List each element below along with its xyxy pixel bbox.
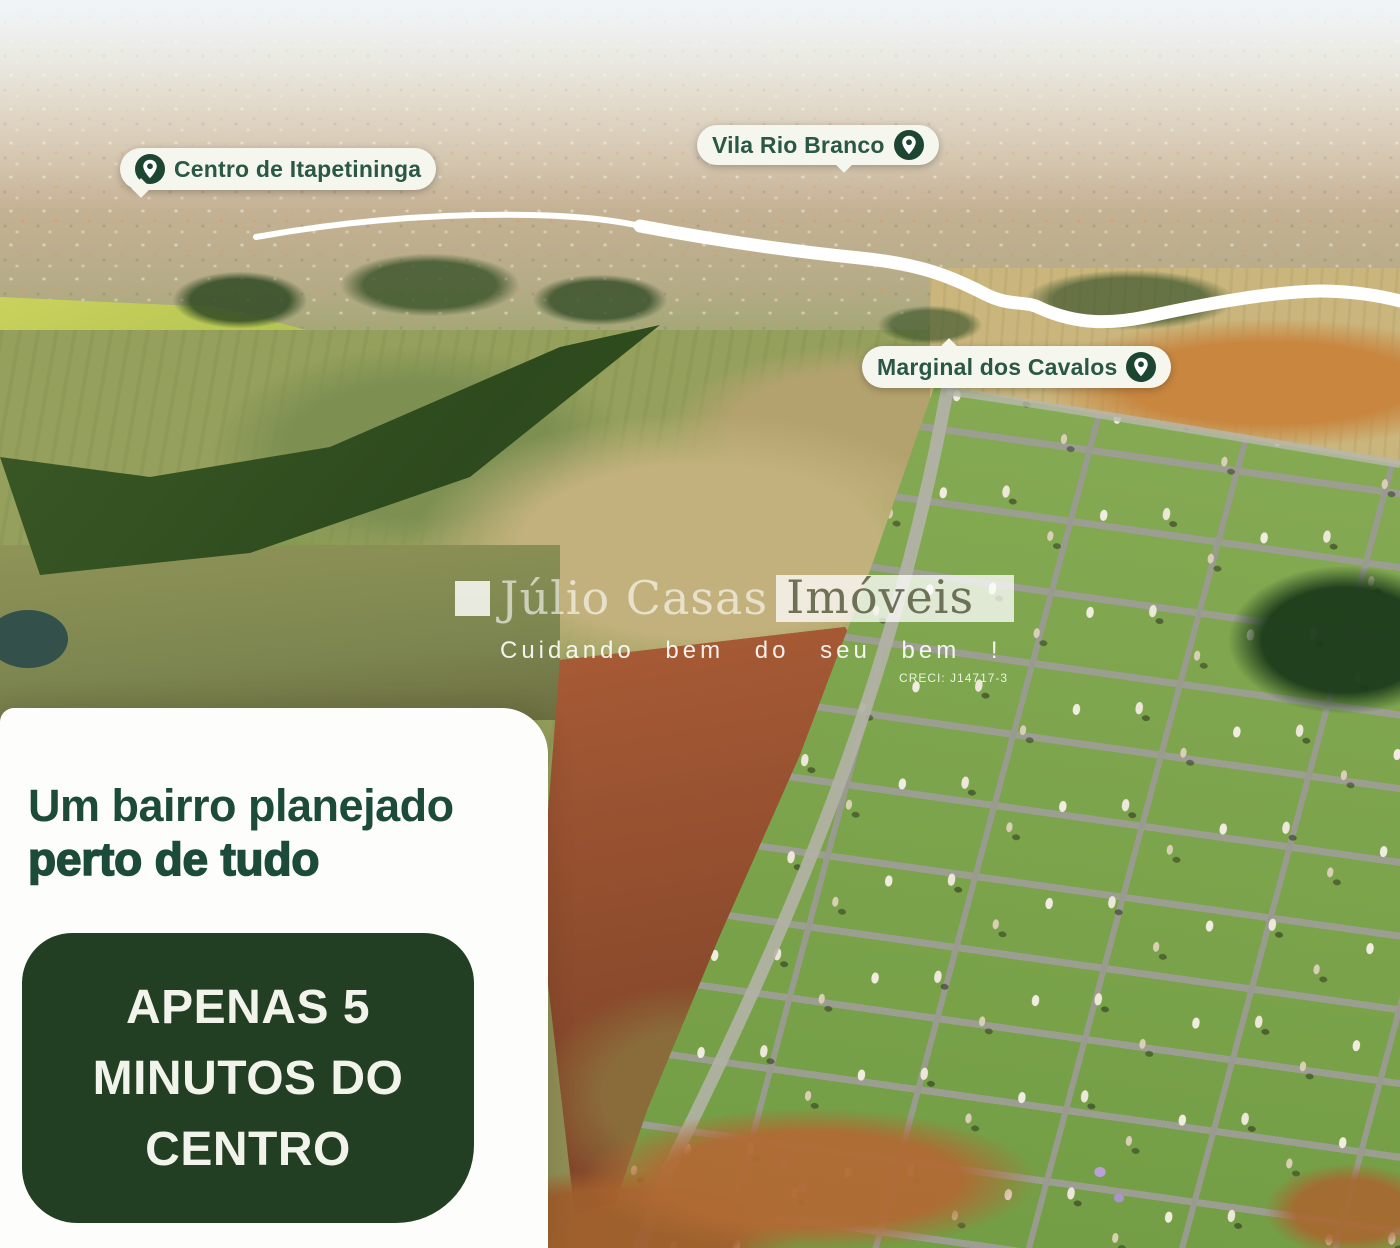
creci-license: CRECI: J14717-3 (899, 671, 1008, 685)
road-highlight-icon (640, 226, 1400, 322)
road-highlight-thin (256, 215, 650, 237)
headline-line1: Um bairro planejado (28, 780, 454, 832)
brand-name-secondary: Imóveis (786, 570, 974, 624)
location-pin-icon (894, 130, 924, 160)
badge-line1: APENAS 5 (126, 972, 370, 1043)
brand-tagline: Cuidando bem do seu bem ! (500, 637, 1014, 665)
distance-badge: APENAS 5 MINUTOS DO CENTRO (22, 933, 474, 1223)
brand-watermark: Júlio Casas Imóveis CRECI: J14717-3 Cuid… (455, 575, 1014, 665)
map-label-marginal-dos-cavalos: Marginal dos Cavalos (862, 346, 1171, 388)
map-label-text: Marginal dos Cavalos (877, 354, 1117, 381)
promo-panel: Um bairro planejado perto de tudo APENAS… (0, 708, 548, 1248)
map-label-centro: Centro de Itapetininga (120, 148, 436, 190)
aerial-photo: Centro de Itapetininga Vila Rio Branco M… (0, 0, 1400, 1248)
brand-name-band: Imóveis (776, 575, 1014, 622)
map-label-text: Centro de Itapetininga (174, 156, 421, 183)
headline-line2: perto de tudo (28, 832, 454, 886)
map-label-text: Vila Rio Branco (712, 132, 885, 159)
boundary-road (947, 391, 1400, 464)
map-label-vila-rio-branco: Vila Rio Branco (697, 125, 939, 165)
badge-line3: CENTRO (145, 1114, 351, 1185)
marginal-road (640, 391, 947, 1248)
headline: Um bairro planejado perto de tudo (28, 780, 454, 886)
badge-line2: MINUTOS DO (93, 1043, 404, 1114)
brand-logo-square (455, 581, 490, 616)
location-pin-icon (1126, 352, 1156, 382)
location-pin-icon (135, 154, 165, 184)
brand-name: Júlio Casas (500, 575, 768, 621)
